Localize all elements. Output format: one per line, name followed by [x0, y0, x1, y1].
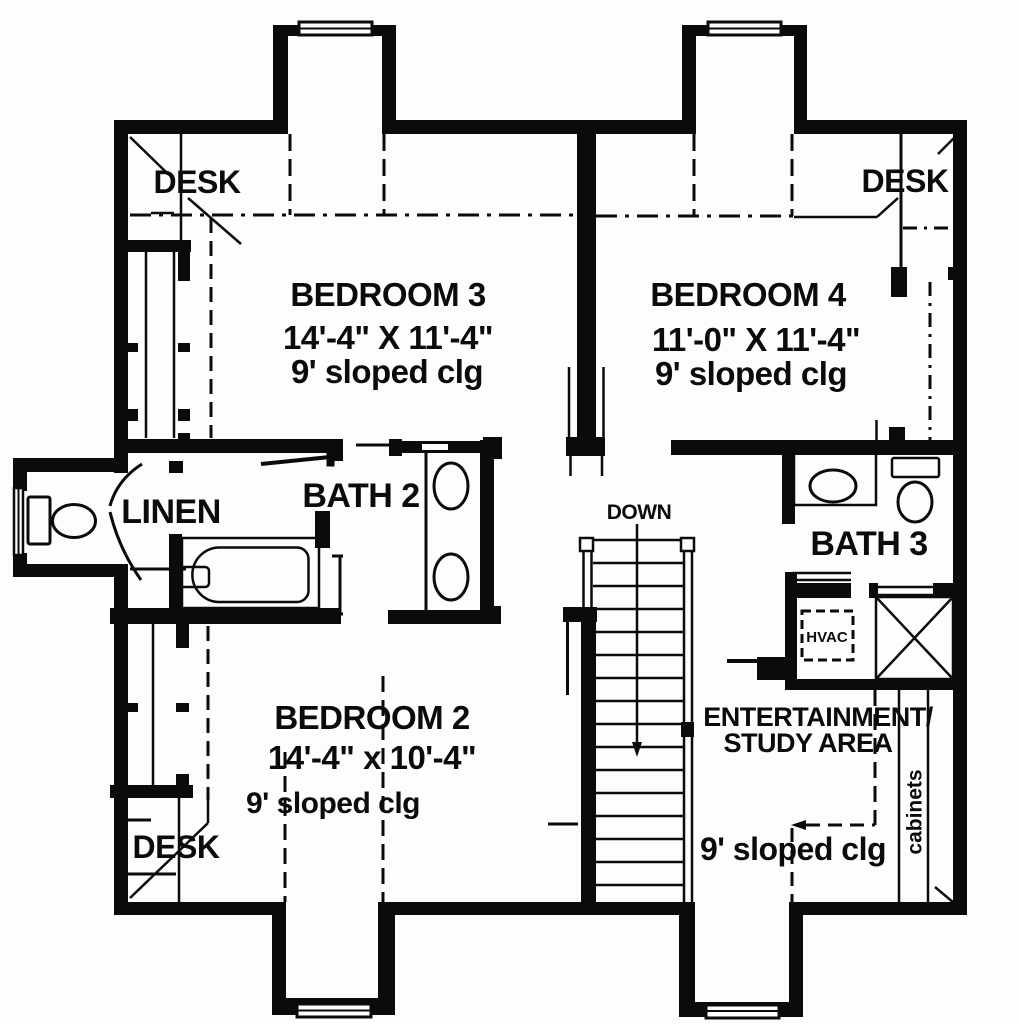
svg-text:BEDROOM 3: BEDROOM 3 [290, 276, 486, 313]
svg-text:9' sloped clg: 9' sloped clg [655, 355, 847, 392]
svg-text:14'-4" X 11'-4": 14'-4" X 11'-4" [283, 319, 493, 356]
svg-text:LINEN: LINEN [121, 493, 221, 531]
svg-text:BATH 2: BATH 2 [302, 477, 419, 515]
svg-text:14'-4" x 10'-4": 14'-4" x 10'-4" [268, 739, 476, 776]
svg-text:HVAC: HVAC [806, 629, 848, 646]
svg-text:DOWN: DOWN [607, 501, 672, 524]
svg-text:DESK: DESK [154, 164, 241, 200]
svg-text:STUDY AREA: STUDY AREA [723, 728, 892, 758]
svg-text:11'-0" X 11'-4": 11'-0" X 11'-4" [652, 321, 860, 358]
svg-text:9' sloped clg: 9' sloped clg [291, 353, 483, 390]
svg-text:BEDROOM 2: BEDROOM 2 [274, 699, 470, 736]
svg-text:DESK: DESK [133, 829, 220, 865]
svg-text:DESK: DESK [862, 163, 949, 199]
svg-text:BATH 3: BATH 3 [810, 525, 927, 563]
svg-text:9' sloped clg: 9' sloped clg [700, 831, 886, 867]
svg-text:cabinets: cabinets [904, 769, 927, 854]
svg-text:BEDROOM 4: BEDROOM 4 [650, 276, 847, 313]
svg-text:9' sloped clg: 9' sloped clg [246, 787, 420, 820]
